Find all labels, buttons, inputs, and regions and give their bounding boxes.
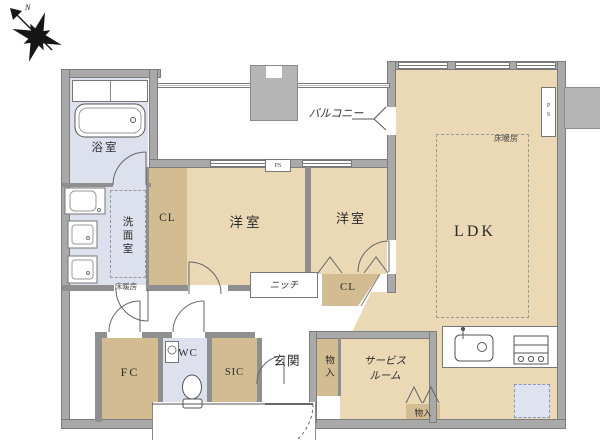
fc-label: FC bbox=[102, 364, 158, 380]
floor-plan: 浴室 洗面室 床暖房 CL 洋室 洋室 CL LDK 床暖房 バルコニー ニッチ… bbox=[0, 0, 600, 440]
ldk-label: LDK bbox=[440, 222, 510, 242]
opening-balcony-door bbox=[387, 107, 396, 135]
fc-closet bbox=[102, 338, 158, 422]
bath-cabinet bbox=[72, 80, 148, 102]
wall-bedroom-divider bbox=[305, 167, 311, 285]
wall-service-top bbox=[310, 332, 436, 338]
storage-service-label: 物入 bbox=[406, 405, 440, 420]
wall-bath-divider-b bbox=[146, 183, 151, 187]
bedroom-right-label: 洋室 bbox=[322, 208, 380, 226]
wall-bottom-right bbox=[314, 420, 565, 428]
door-fc bbox=[109, 301, 140, 332]
wall-hall-top-b bbox=[146, 285, 188, 291]
opening-bedroom-right-door bbox=[387, 240, 396, 274]
closet-main-label: CL bbox=[148, 211, 187, 225]
wc-label: WC bbox=[170, 346, 206, 360]
wall-hall-top-c bbox=[228, 285, 250, 291]
bath-cabinet-divider bbox=[110, 81, 111, 101]
balcony-divider-notch bbox=[266, 66, 282, 78]
window-ldk-1 bbox=[398, 62, 448, 69]
compass-icon: N bbox=[4, 3, 70, 70]
entrance-label: 玄関 bbox=[264, 351, 310, 367]
wall-left bbox=[62, 70, 69, 428]
wall-bottom-left bbox=[62, 420, 154, 428]
door-wc bbox=[173, 301, 204, 332]
window-bedroom-left bbox=[210, 160, 270, 167]
refrigerator-space bbox=[514, 384, 550, 418]
wall-top-left bbox=[62, 70, 160, 77]
window-bedroom-right bbox=[302, 160, 352, 167]
floor-heating-washroom-label: 床暖房 bbox=[104, 281, 148, 291]
door-washroom bbox=[116, 289, 148, 321]
service-room-label: サービスルーム bbox=[340, 345, 430, 393]
entrance-porch bbox=[152, 402, 316, 440]
ps-ldk-label: PS bbox=[542, 92, 555, 132]
balcony-label: バルコニー bbox=[296, 106, 376, 120]
storage-hall-label: 物入 bbox=[320, 342, 336, 392]
window-ldk-3 bbox=[516, 62, 556, 69]
wall-fc-left bbox=[95, 332, 102, 422]
wall-hall-bottom-c bbox=[205, 332, 255, 338]
niche-label: ニッチ bbox=[254, 277, 314, 290]
bedroom-left-label: 洋室 bbox=[216, 212, 276, 230]
wall-right bbox=[558, 62, 565, 428]
closet-hall-label: CL bbox=[328, 280, 368, 294]
wall-utility-right bbox=[150, 70, 157, 167]
ps-bedroom-label: PS bbox=[265, 160, 291, 172]
closet-main bbox=[148, 167, 187, 285]
wall-hall-bottom-b bbox=[142, 332, 172, 338]
exterior-duct-block bbox=[565, 88, 600, 128]
bathroom-label: 浴室 bbox=[80, 140, 130, 154]
wall-bath-divider-a bbox=[62, 183, 113, 187]
sic-label: SIC bbox=[212, 365, 257, 379]
floor-heating-ldk-label: 床暖房 bbox=[482, 133, 530, 144]
washroom-label: 洗面室 bbox=[119, 205, 135, 267]
window-ldk-2 bbox=[455, 62, 510, 69]
compass-north-text: N bbox=[24, 3, 31, 12]
kitchen-counter bbox=[442, 326, 558, 368]
